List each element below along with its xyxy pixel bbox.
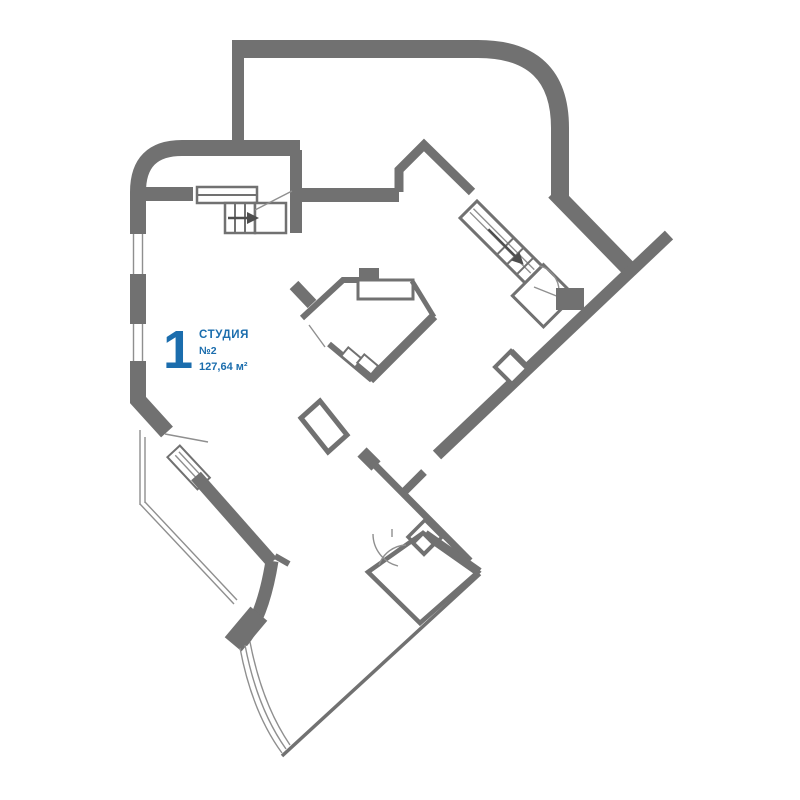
wall-room-right — [412, 281, 434, 317]
lower-wing — [282, 452, 480, 756]
wall-inner-diagonal — [196, 476, 272, 562]
door-leaf — [165, 434, 208, 442]
central-room — [294, 268, 434, 380]
wall-bottom-thin — [282, 574, 480, 756]
window-opening — [128, 324, 148, 361]
wall-stub — [404, 472, 424, 492]
counter — [358, 280, 413, 299]
window-opening — [128, 234, 148, 274]
unit-no: №2 — [199, 345, 249, 357]
wall-right-diagonal — [554, 192, 632, 272]
wall-peak — [399, 145, 472, 192]
unit-type: СТУДИЯ — [199, 329, 249, 341]
staircase-upper — [197, 187, 292, 233]
vent-stub — [294, 285, 312, 304]
door-leaf — [309, 325, 325, 347]
floor-plan-drawing — [0, 0, 800, 800]
floor-plan-page: 1 СТУДИЯ №2 127,64 м² — [0, 0, 800, 800]
outer-walls — [138, 42, 669, 455]
unit-label: 1 СТУДИЯ №2 127,64 м² — [163, 323, 249, 377]
partition-stub — [556, 288, 584, 310]
unit-area: 127,64 м² — [199, 361, 249, 373]
curved-facade — [140, 430, 290, 753]
unit-number: 1 — [163, 323, 191, 377]
staircase-diagonal — [447, 200, 574, 327]
furniture-block — [301, 401, 347, 452]
wall-room-lower-right — [370, 316, 434, 380]
wall-se-facade — [437, 235, 669, 455]
